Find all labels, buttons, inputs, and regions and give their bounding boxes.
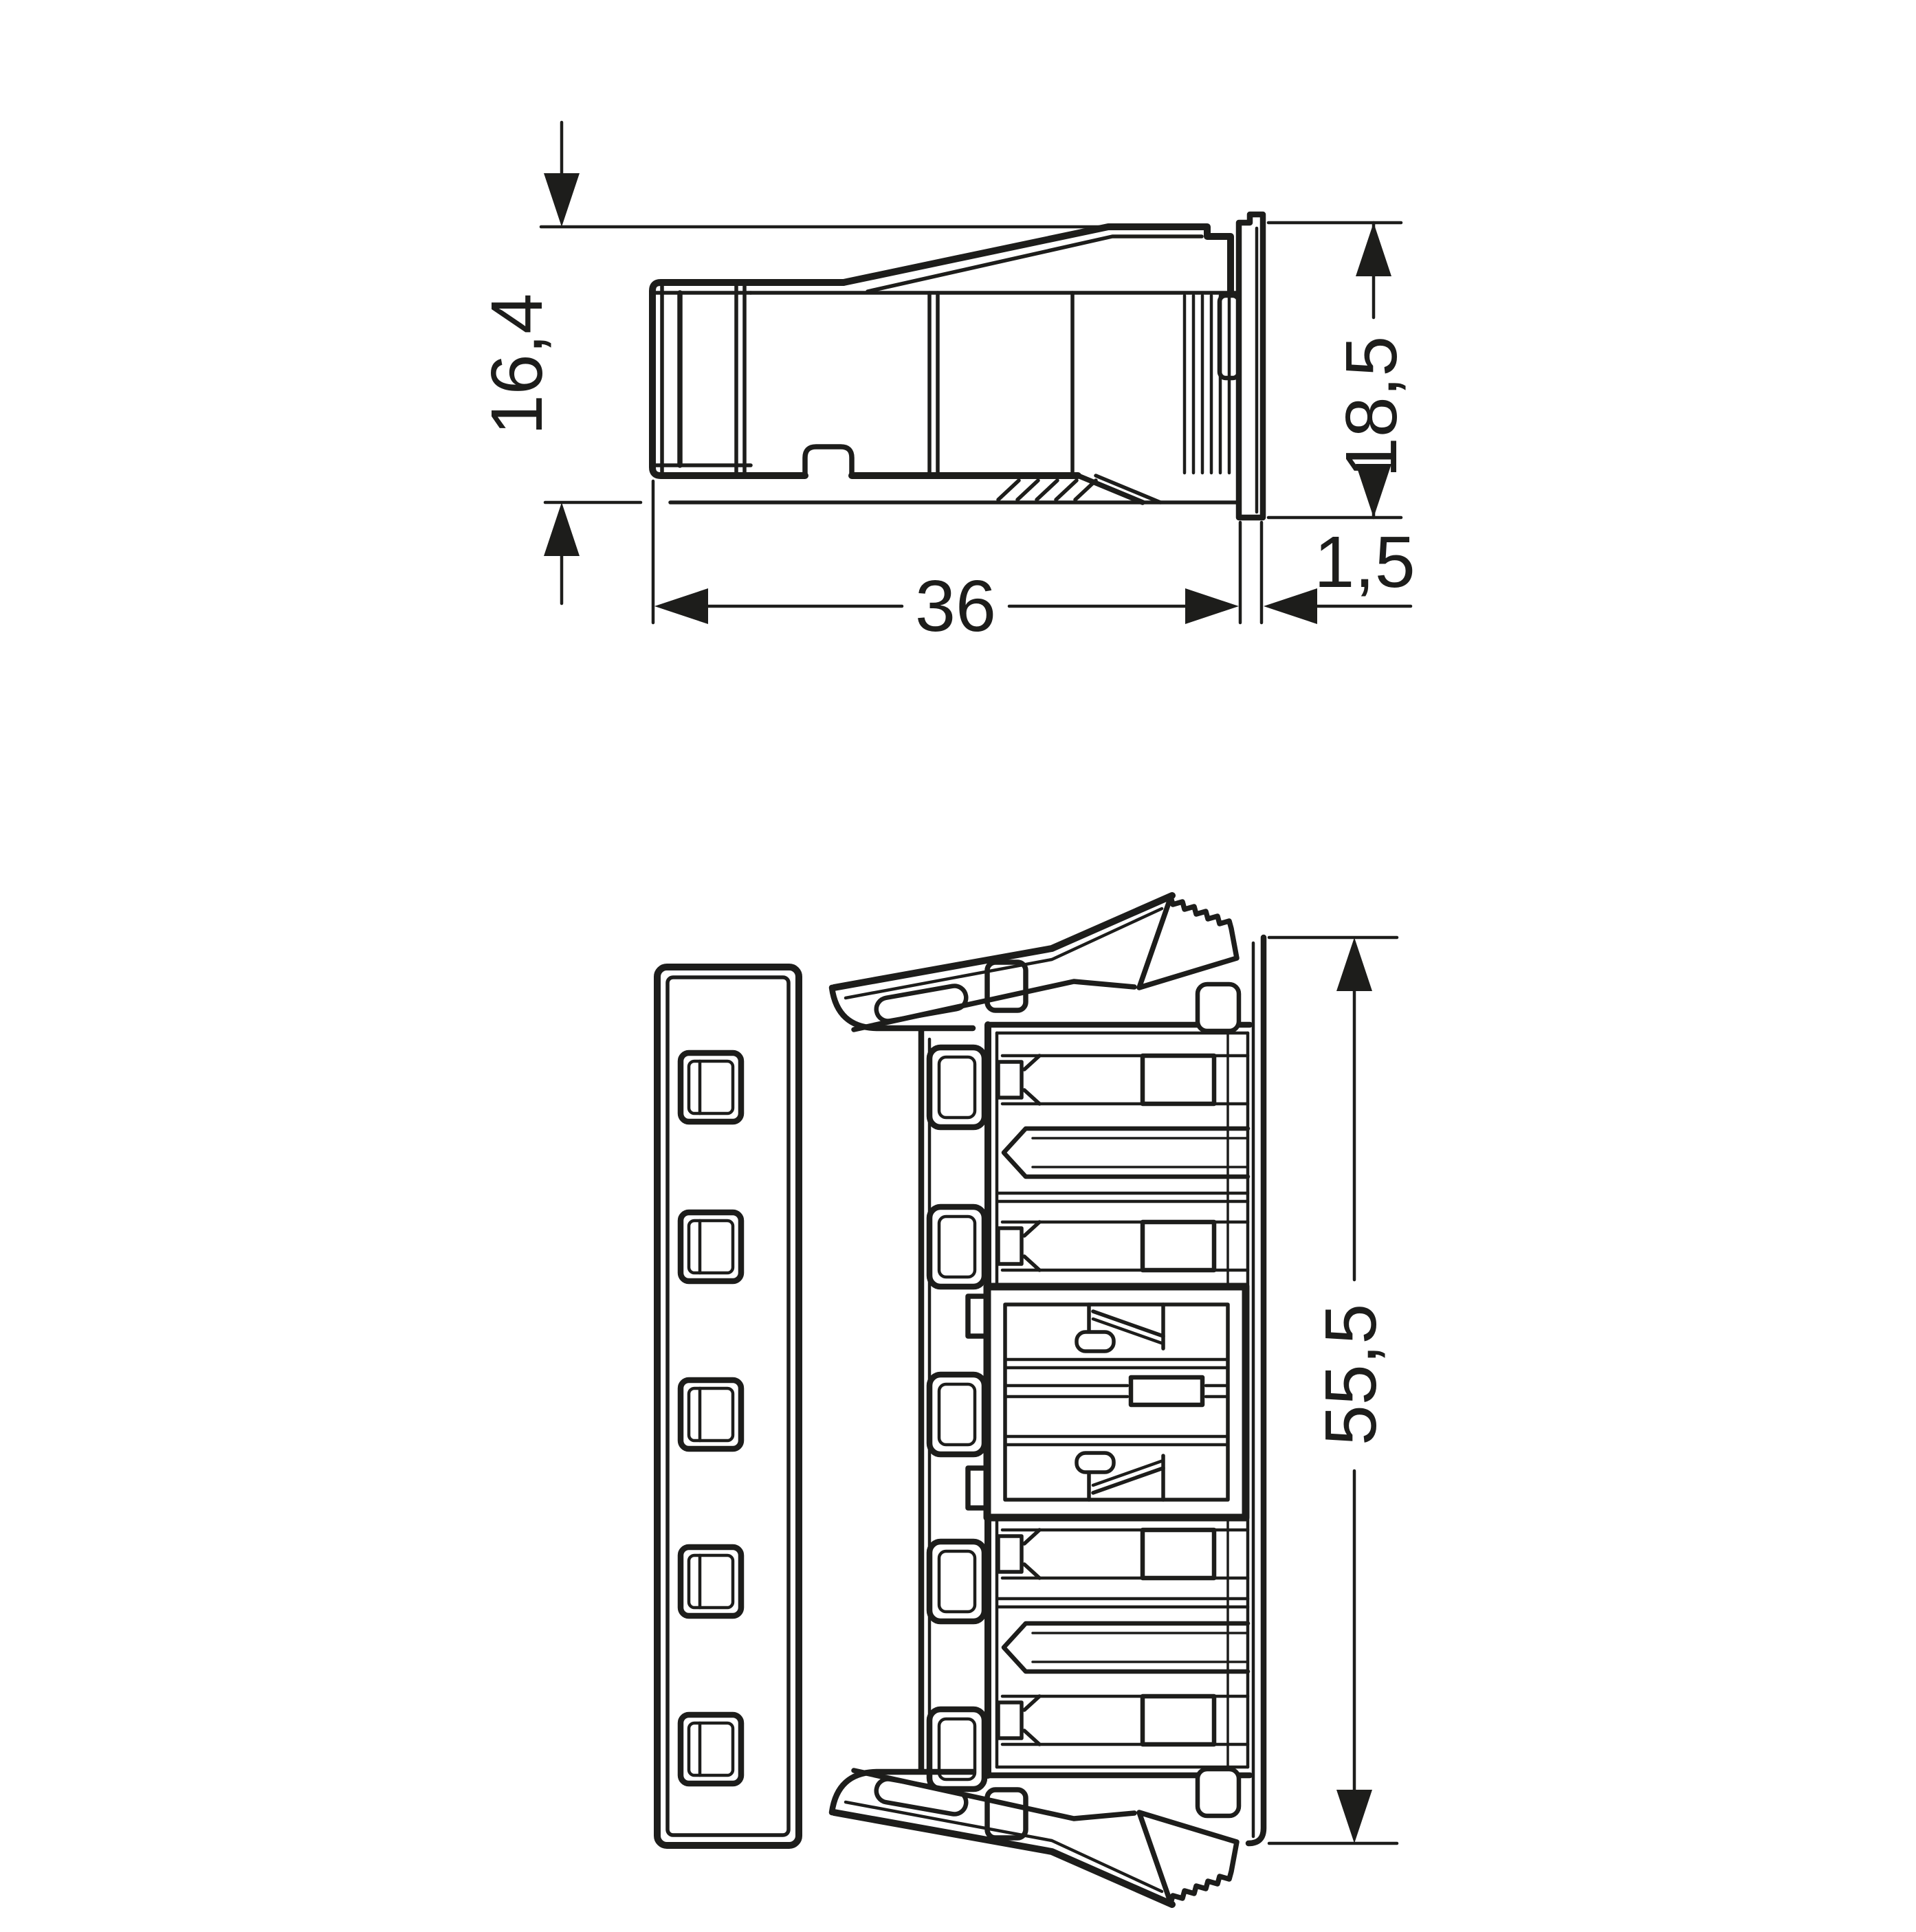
- contact-window: [1143, 1222, 1214, 1270]
- dim-label-housing-length: 36: [915, 566, 996, 647]
- contact-window: [1131, 1377, 1202, 1405]
- technical-drawing: 16,4 18,5 36 1,5: [0, 0, 1916, 1932]
- page: 16,4 18,5 36 1,5: [0, 0, 1916, 1932]
- center-chamber-box: [968, 1287, 1246, 1518]
- dim-label-total-height: 55,5: [1310, 1304, 1391, 1445]
- contact-window: [1143, 1530, 1214, 1578]
- contact-window: [1143, 1696, 1214, 1744]
- dim-label-front-height: 16,4: [476, 293, 558, 435]
- dim-label-flange-height: 18,5: [1331, 336, 1412, 478]
- dim-label-flange-thickness: 1,5: [1314, 522, 1415, 603]
- contact-window: [1143, 1056, 1214, 1104]
